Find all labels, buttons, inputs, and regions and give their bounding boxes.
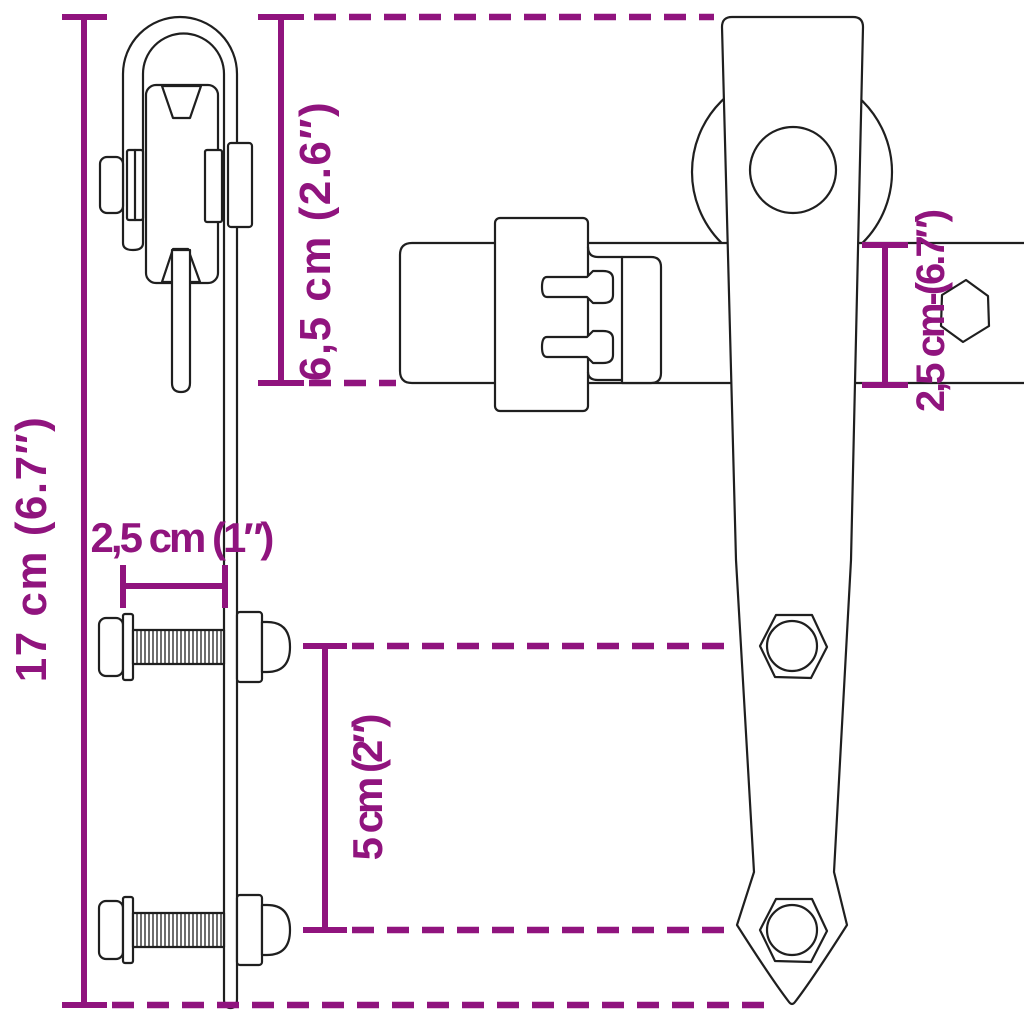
axle-bolt-head — [100, 157, 123, 213]
dim-17cm-label: 17 cm (6.7″) — [7, 416, 56, 683]
upper-bolt-cap-nut — [262, 622, 290, 672]
diagram-page: 17 cm (6.7″) 6,5 cm (2.6″) 2,5 cm (1″) 5… — [0, 0, 1024, 1024]
upper-bolt-shaft — [133, 630, 224, 664]
lower-bolt-shaft — [133, 913, 224, 947]
upper-bolt-washer — [237, 612, 262, 682]
hex-nut-upper-hole — [767, 621, 817, 671]
wall-bolt-upper — [99, 612, 290, 682]
side-view — [99, 17, 290, 1008]
axle-bolt-nut — [228, 143, 252, 227]
lower-bolt-flange — [123, 897, 133, 963]
dim-65mm-label: 6,5 cm (2.6″) — [291, 101, 340, 381]
axle-bolt-washer-right — [205, 150, 222, 222]
clamp-block — [495, 218, 588, 411]
lower-bolt-head — [99, 901, 123, 959]
strap-hex-nut-lower — [760, 899, 827, 962]
dim-25mm-left-label: 2,5 cm (1″) — [91, 514, 273, 561]
lower-bolt-washer — [237, 895, 262, 965]
upper-bolt-flange — [123, 614, 133, 680]
upper-bolt-head — [99, 618, 123, 676]
wall-bolt-lower — [99, 895, 290, 965]
axle-bolt-front — [750, 127, 836, 213]
hex-nut-lower-hole — [767, 905, 817, 955]
dimension-diagram-canvas: 17 cm (6.7″) 6,5 cm (2.6″) 2,5 cm (1″) 5… — [0, 0, 1024, 1024]
dim-25mm-right-label: 2,5 cm-(6.7″) — [909, 210, 953, 412]
lower-bolt-cap-nut — [262, 905, 290, 955]
hanger-tab — [172, 250, 190, 392]
clamp-plate — [622, 257, 661, 383]
strap-hex-nut-upper — [760, 615, 827, 678]
dim-5cm-label: 5 cm (2″) — [344, 716, 391, 861]
front-view — [400, 17, 1024, 1004]
